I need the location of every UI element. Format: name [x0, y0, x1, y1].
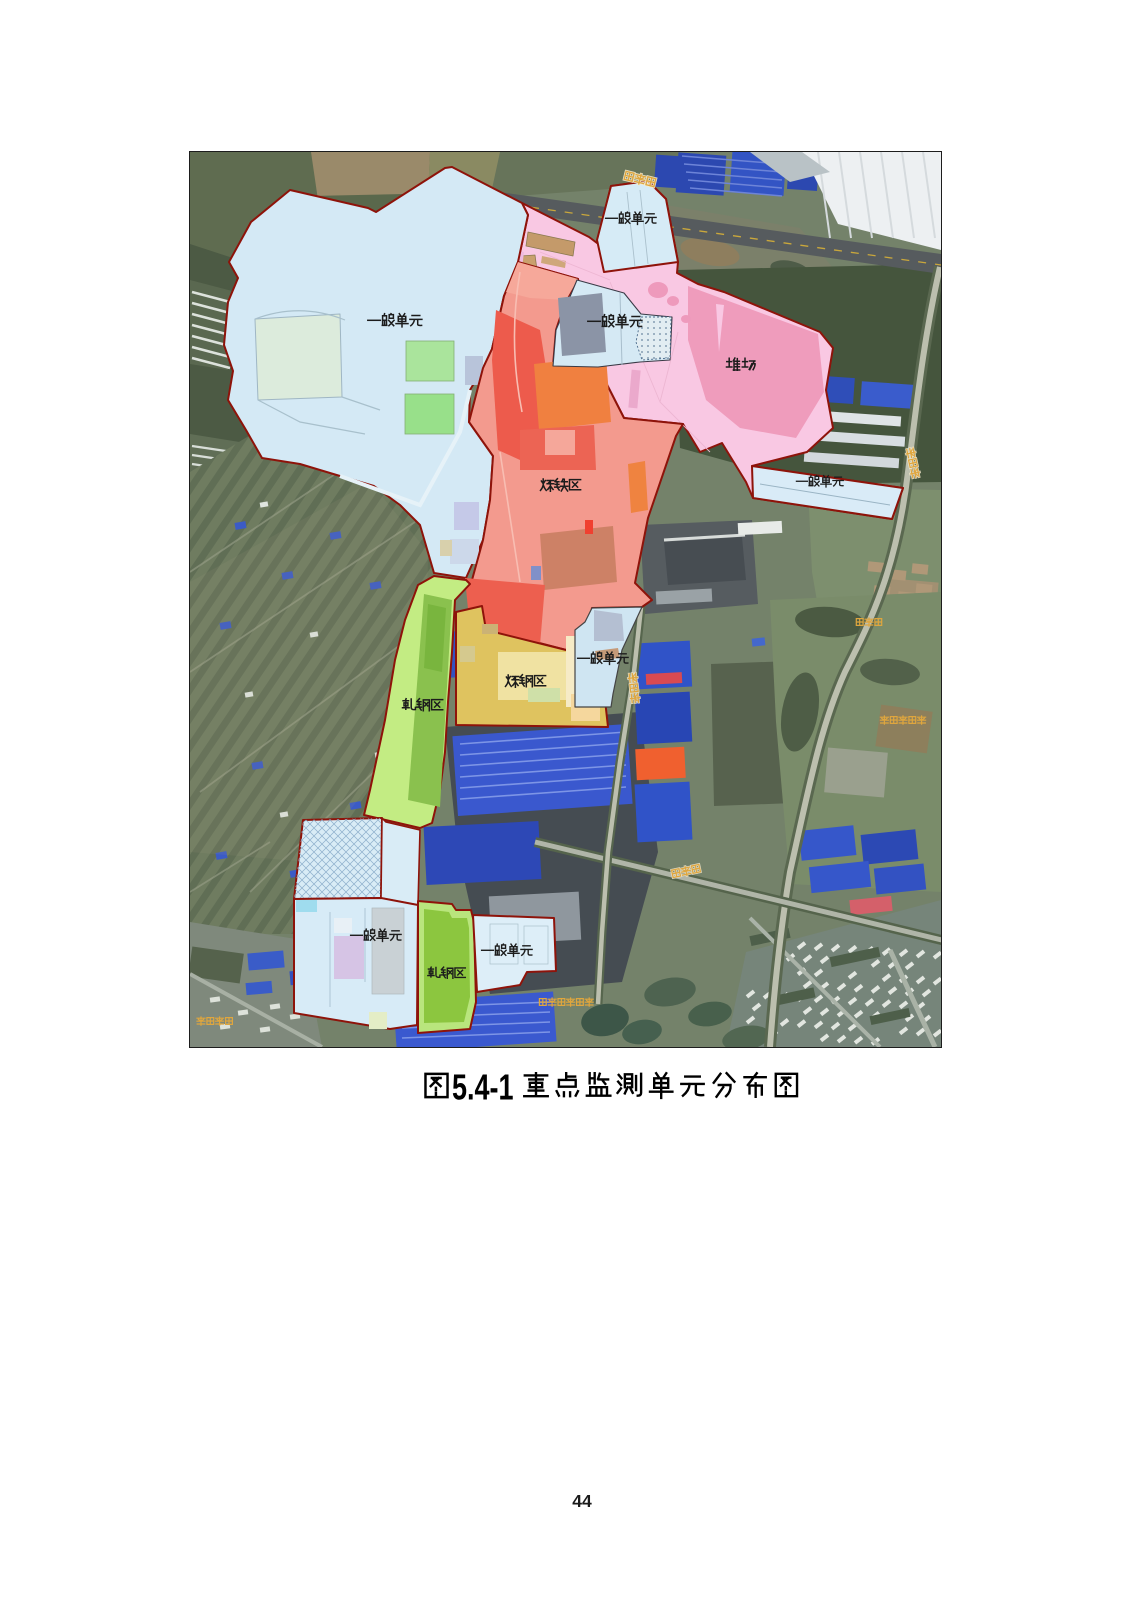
svg-text:5.4-1: 5.4-1 — [452, 1067, 514, 1108]
